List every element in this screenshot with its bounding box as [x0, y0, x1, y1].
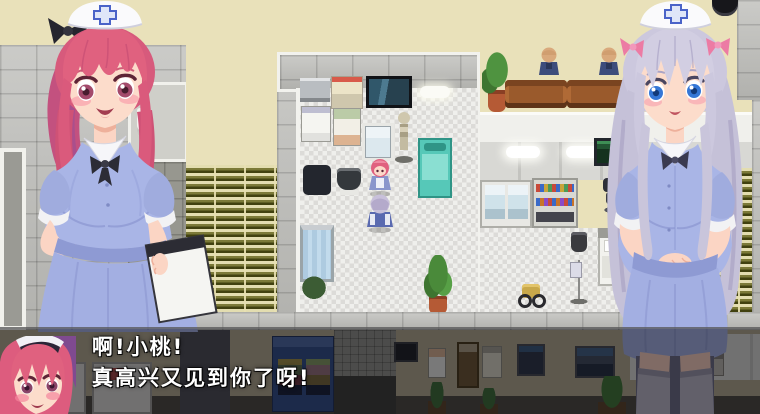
glass-medicine-cabinet [480, 180, 532, 228]
npc-sprite-bald-man[interactable] [538, 46, 560, 82]
npc-sprite-pink-nurse[interactable] [364, 157, 396, 197]
dark-plant [299, 276, 329, 302]
potted-plant-room [424, 255, 452, 317]
dialogue-line-2: 真高兴又见到你了呀! [92, 363, 311, 394]
wall-shelf [300, 78, 330, 102]
anatomy-poster [333, 108, 361, 146]
wall-tv [366, 76, 412, 108]
glass-cabinet [362, 123, 394, 161]
nurse-left-bust [8, 0, 243, 332]
sterilizer-pot [337, 168, 361, 190]
calendar [331, 76, 363, 109]
shower-stall [300, 225, 334, 282]
medical-machine [303, 165, 331, 195]
player-sprite-back[interactable] [363, 193, 397, 233]
exam-bed-teal [418, 138, 452, 198]
couch [505, 80, 567, 108]
skeleton-model [394, 112, 414, 164]
wheelchair [518, 282, 546, 310]
counter-light [506, 146, 540, 158]
ceiling-light [420, 86, 450, 98]
dialogue-text: 啊!小桃! 真高兴又见到你了呀! [92, 332, 311, 394]
chart-poster [301, 106, 331, 142]
medicine-shelf [532, 178, 578, 228]
trash-bin [571, 232, 587, 252]
dialogue-line-1: 啊!小桃! [92, 332, 311, 363]
speaker-portrait [0, 336, 76, 414]
pot-stand [340, 190, 358, 195]
game-screen: 啊!小桃! 真高兴又见到你了呀! [0, 0, 760, 414]
